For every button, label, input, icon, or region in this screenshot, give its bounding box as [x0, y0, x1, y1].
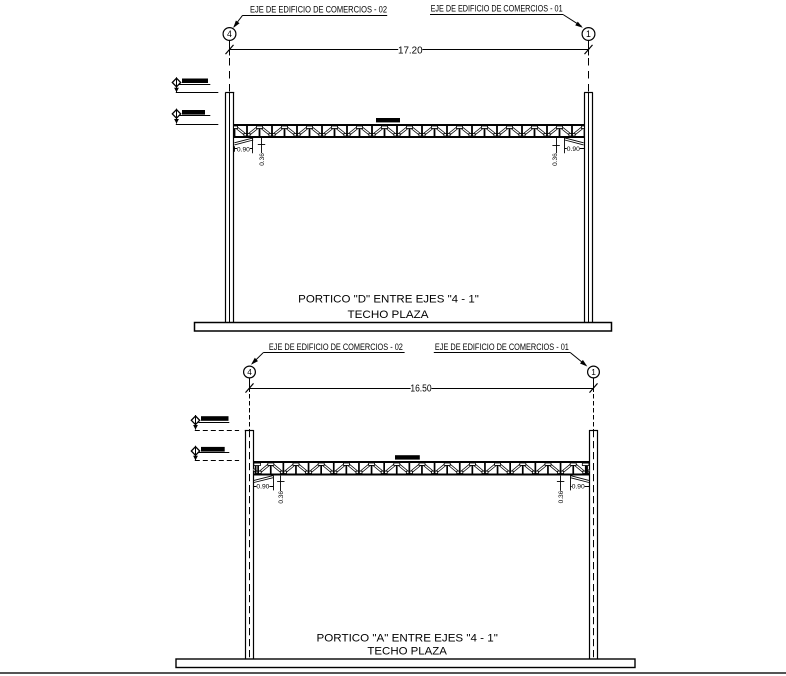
svg-text:EJE DE EDIFICIO DE COMERCIOS -: EJE DE EDIFICIO DE COMERCIOS - 02 [250, 4, 387, 14]
svg-text:TECHO PLAZA: TECHO PLAZA [348, 309, 430, 321]
svg-text:PORTICO "A" ENTRE EJES "4 - 1": PORTICO "A" ENTRE EJES "4 - 1" [317, 632, 498, 644]
svg-text:0.36: 0.36 [552, 153, 559, 166]
svg-text:EJE DE EDIFICIO DE COMERCIOS -: EJE DE EDIFICIO DE COMERCIOS - 01 [431, 4, 563, 14]
svg-text:0.90: 0.90 [572, 483, 585, 490]
svg-text:17.20: 17.20 [398, 45, 423, 56]
svg-text:0.36: 0.36 [558, 491, 565, 504]
svg-text:4: 4 [247, 367, 252, 377]
svg-text:0.90: 0.90 [256, 483, 269, 490]
svg-text:0.90: 0.90 [237, 146, 250, 153]
svg-text:EJE DE EDIFICIO DE COMERCIOS -: EJE DE EDIFICIO DE COMERCIOS - 02 [269, 342, 403, 352]
svg-text:4: 4 [227, 29, 232, 39]
svg-text:EJE DE EDIFICIO DE COMERCIOS -: EJE DE EDIFICIO DE COMERCIOS - 01 [435, 342, 569, 352]
svg-text:0.36: 0.36 [259, 153, 266, 166]
svg-text:0.36: 0.36 [278, 491, 285, 504]
svg-text:1: 1 [591, 367, 596, 377]
svg-text:0.90: 0.90 [567, 146, 580, 153]
svg-text:16.50: 16.50 [410, 383, 432, 394]
svg-text:1: 1 [586, 29, 591, 39]
svg-text:PORTICO "D" ENTRE EJES "4 - 1": PORTICO "D" ENTRE EJES "4 - 1" [298, 294, 479, 306]
svg-text:TECHO PLAZA: TECHO PLAZA [367, 645, 447, 657]
